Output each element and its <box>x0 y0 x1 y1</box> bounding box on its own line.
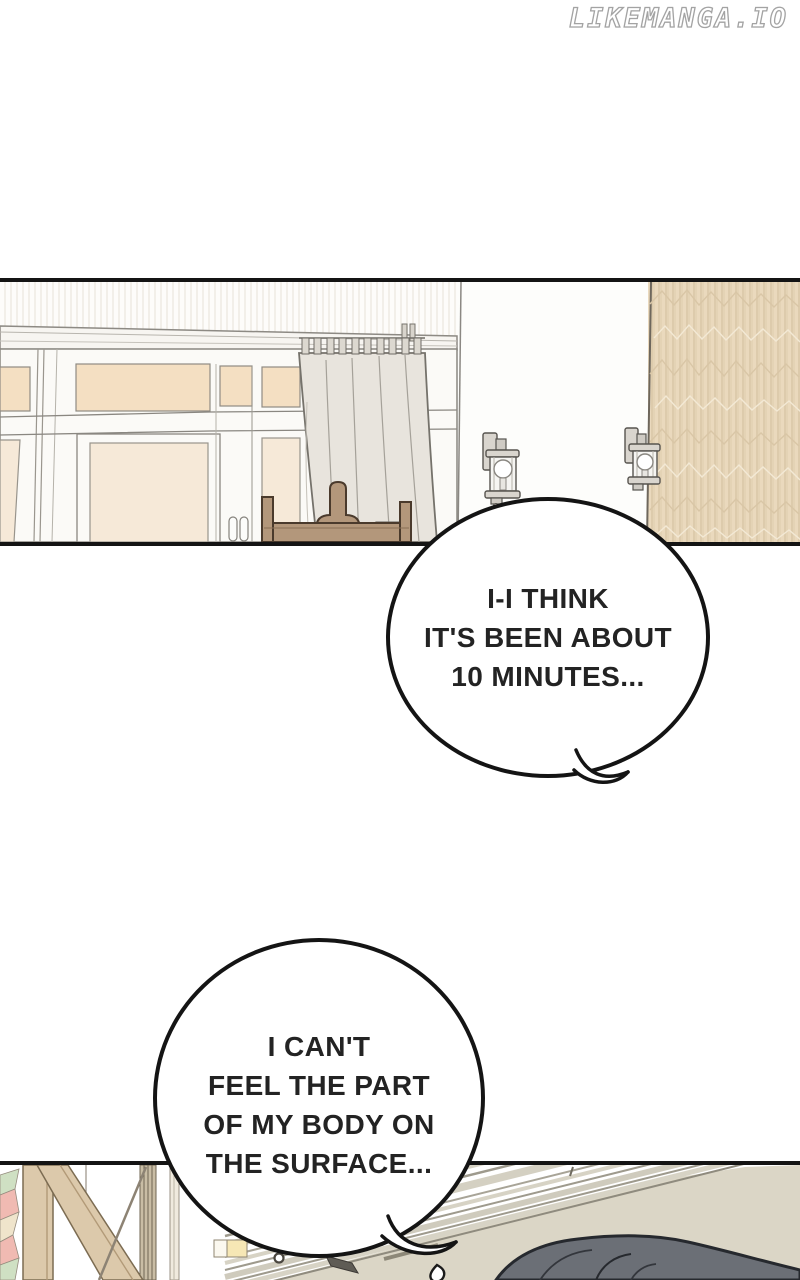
panel-top <box>0 278 800 546</box>
speech-bubble-1: I-I THINK IT'S BEEN ABOUT 10 MINUTES... <box>386 497 710 778</box>
wooden-beams <box>23 1165 179 1280</box>
mosaic-glass <box>0 1169 19 1280</box>
wood-wall-chevrons <box>647 282 800 542</box>
manga-page[interactable]: LIKEMANGA.IO <box>0 0 800 1280</box>
speech-bubble-2-tail <box>378 1214 473 1266</box>
speech-bubble-1-tail <box>570 744 650 796</box>
bubble-text-line: I-I THINK <box>487 579 609 618</box>
curtain <box>299 324 437 542</box>
bubble-text-line: 10 MINUTES... <box>451 657 644 696</box>
panel-top-art <box>0 282 800 542</box>
bubble-text-line: I CAN'T <box>268 1027 371 1066</box>
speech-bubble-2: I CAN'T FEEL THE PART OF MY BODY ON THE … <box>153 938 485 1258</box>
bubble-text-line: OF MY BODY ON <box>203 1105 434 1144</box>
bubble-text-line: IT'S BEEN ABOUT <box>424 618 672 657</box>
bubble-text-line: THE SURFACE... <box>206 1144 433 1183</box>
site-watermark: LIKEMANGA.IO <box>569 3 788 34</box>
bubble-text-line: FEEL THE PART <box>208 1066 430 1105</box>
